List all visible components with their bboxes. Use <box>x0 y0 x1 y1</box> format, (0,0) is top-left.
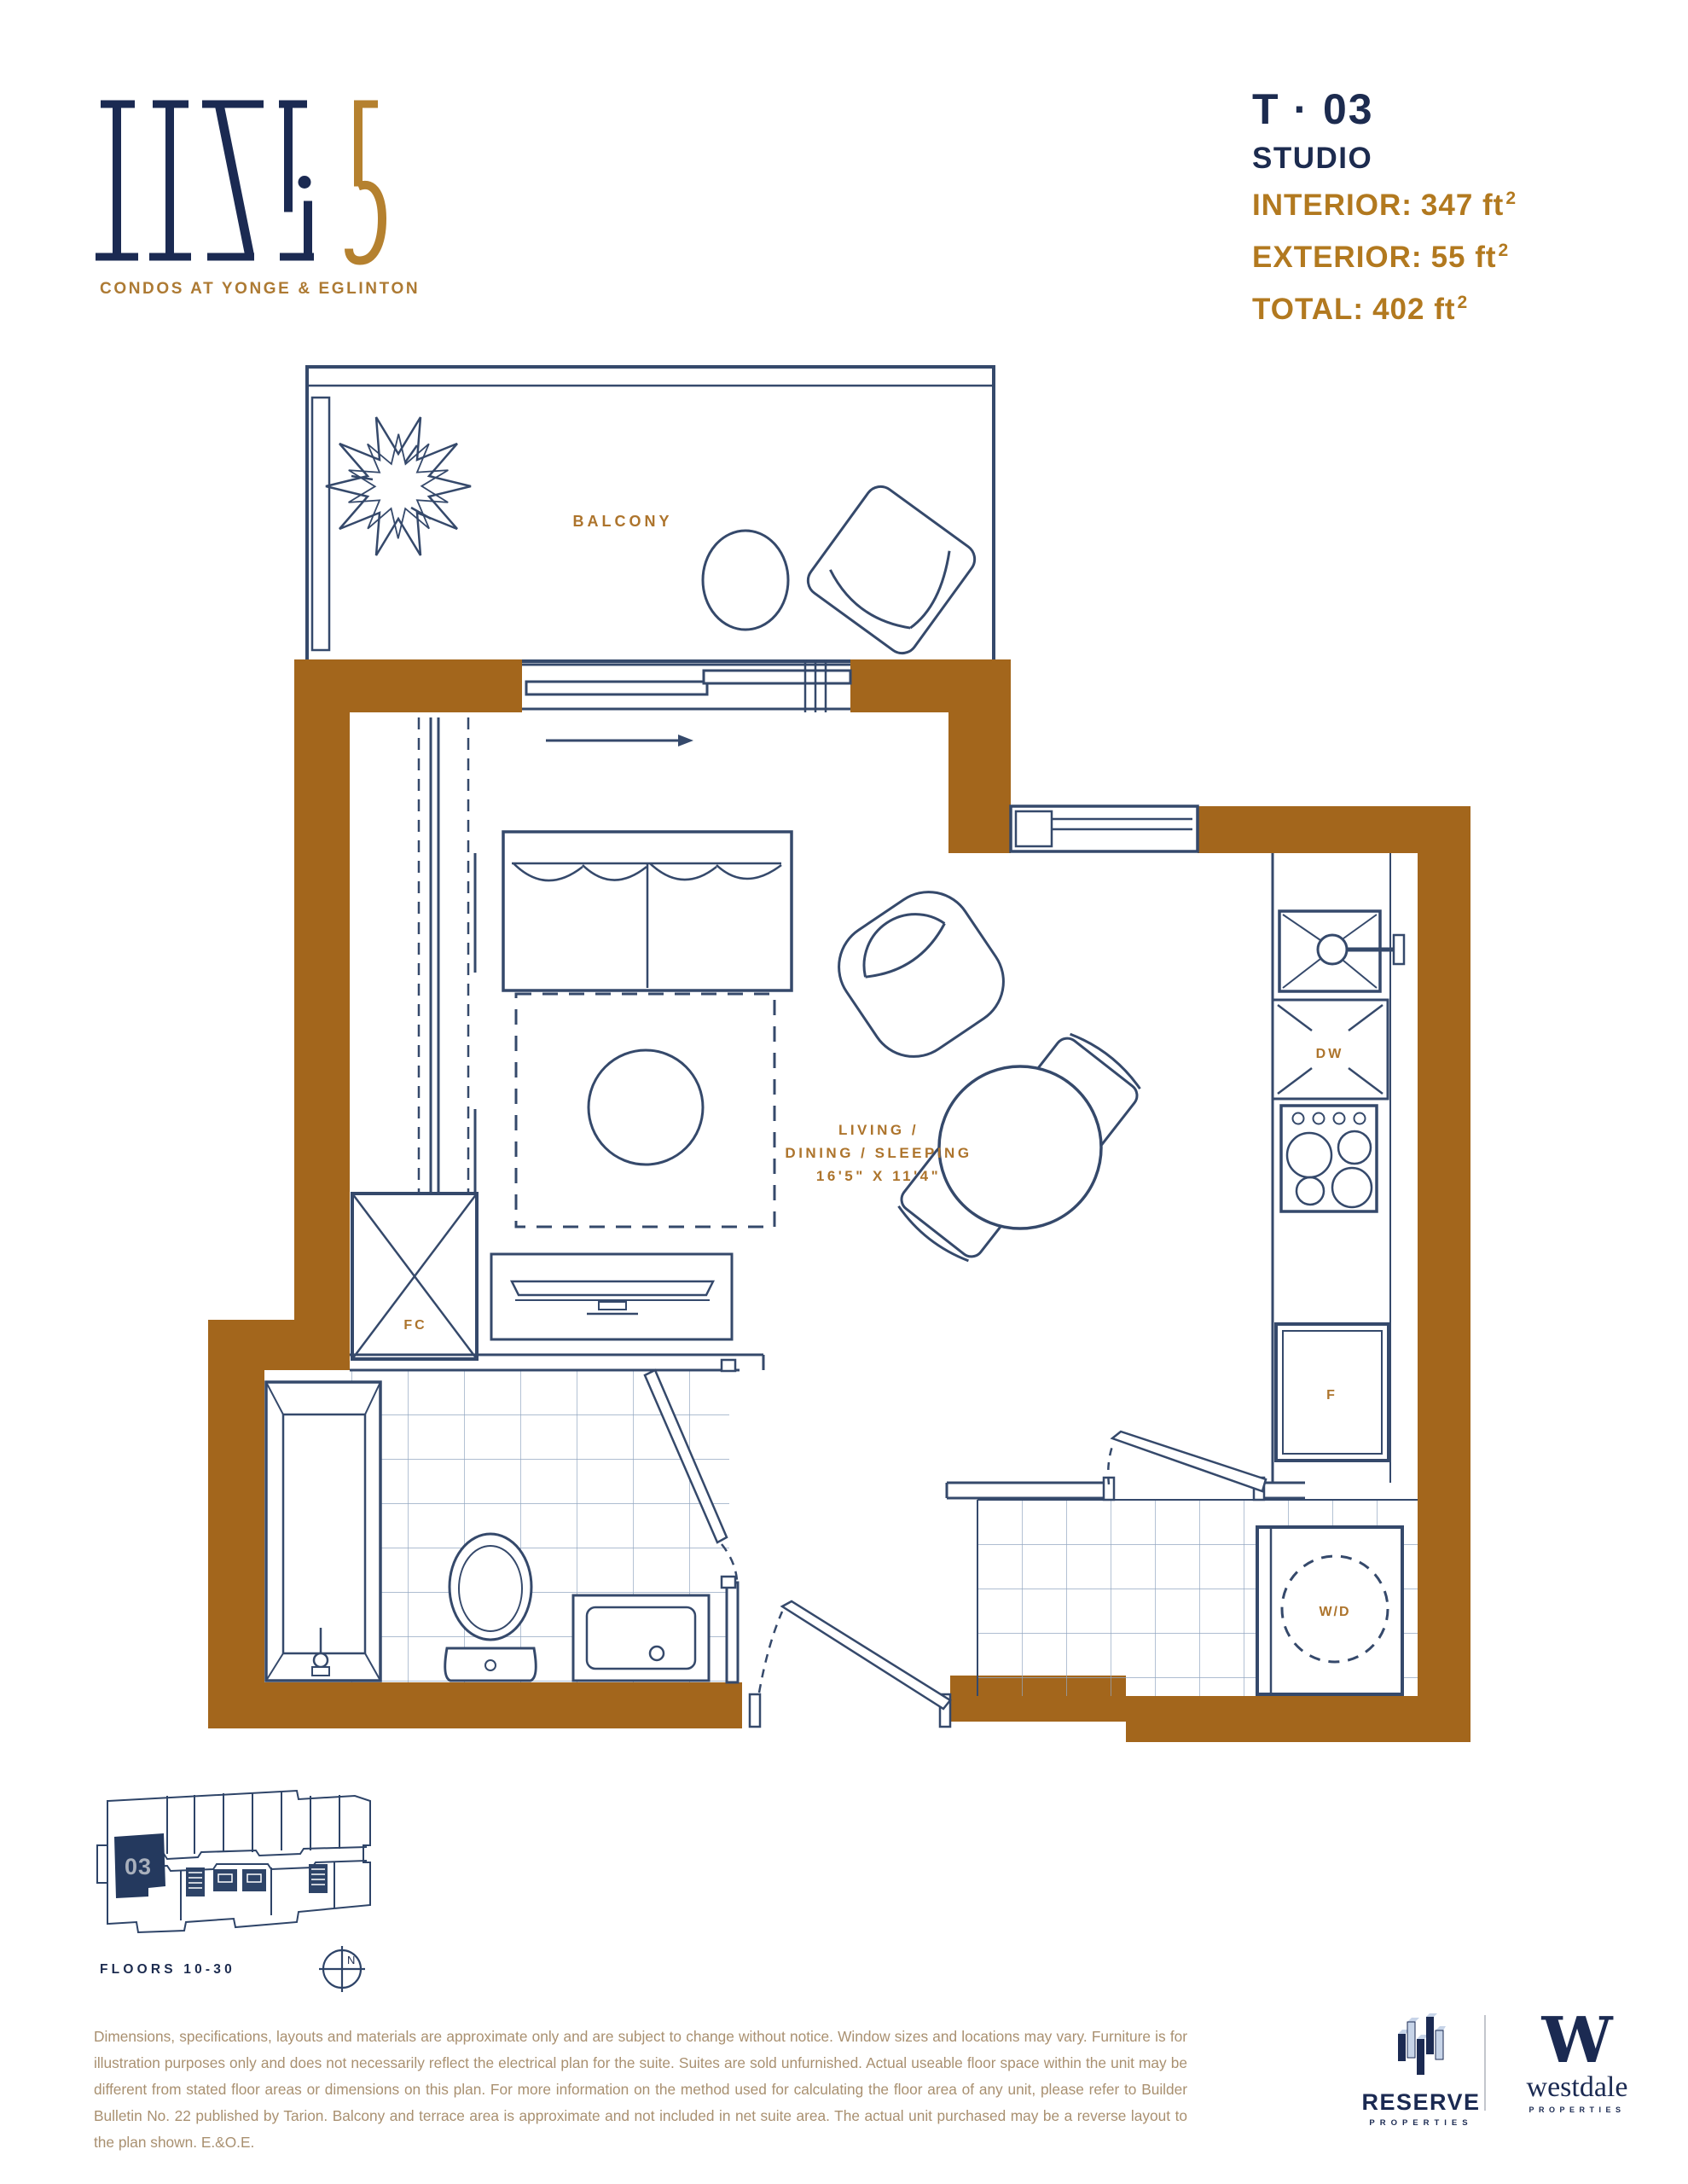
keyplan: 03 FLOORS 10-30 N <box>85 1779 392 2001</box>
disclaimer-text: Dimensions, specifications, layouts and … <box>94 2024 1187 2156</box>
closet-door <box>1112 1432 1266 1491</box>
entry-door <box>750 1601 950 1727</box>
compass-north-label: N <box>347 1954 355 1966</box>
bathroom <box>266 1355 763 1682</box>
balcony-chair <box>802 480 981 659</box>
floorplan-page: CONDOS AT YONGE & EGLINTON T · 03 STUDIO… <box>0 0 1688 2184</box>
toilet <box>445 1534 537 1681</box>
bathtub <box>266 1382 380 1681</box>
armchair <box>821 874 1020 1073</box>
sliding-partition <box>419 717 475 1235</box>
kitchen-window <box>1011 806 1198 851</box>
reserve-properties: PROPERTIES <box>1353 2118 1489 2128</box>
fan-coil-label: FC <box>403 1318 426 1333</box>
washer-dryer-label: W/D <box>1319 1605 1350 1619</box>
reserve-logo: RESERVE PROPERTIES <box>1353 2013 1489 2128</box>
reserve-name: RESERVE <box>1353 2089 1489 2116</box>
dishwasher-label: DW <box>1316 1047 1344 1061</box>
living-label-dims: 16'5" X 11'4" <box>816 1168 941 1184</box>
tv-console <box>491 1254 732 1339</box>
keyplan-unit-label: 03 <box>125 1854 152 1879</box>
reserve-towers-icon <box>1396 2013 1446 2080</box>
living-label-line1: LIVING / <box>838 1122 919 1138</box>
cooktop <box>1281 1106 1377 1211</box>
kitchen <box>1273 853 1404 1483</box>
living-furniture <box>503 832 1147 1269</box>
westdale-name: westdale <box>1505 2073 1650 2102</box>
fan-coil-closet <box>352 1194 477 1359</box>
compass-icon <box>319 1946 365 1992</box>
balcony-sliding-door <box>522 659 850 746</box>
vanity-sink <box>573 1595 709 1681</box>
westdale-properties: PROPERTIES <box>1505 2106 1650 2114</box>
footer-logo-divider <box>1484 2015 1486 2111</box>
fridge-label: F <box>1326 1388 1337 1403</box>
plant-icon <box>326 417 471 555</box>
keyplan-floors-label: FLOORS 10-30 <box>100 1962 235 1977</box>
kitchen-sink <box>1279 911 1404 991</box>
westdale-w-mark: W <box>1505 2010 1650 2071</box>
entry-area <box>947 1432 1418 1696</box>
balcony-label: BALCONY <box>573 513 673 530</box>
living-label-line2: DINING / SLEEPING <box>785 1145 972 1161</box>
westdale-logo: W westdale PROPERTIES <box>1505 2010 1650 2114</box>
